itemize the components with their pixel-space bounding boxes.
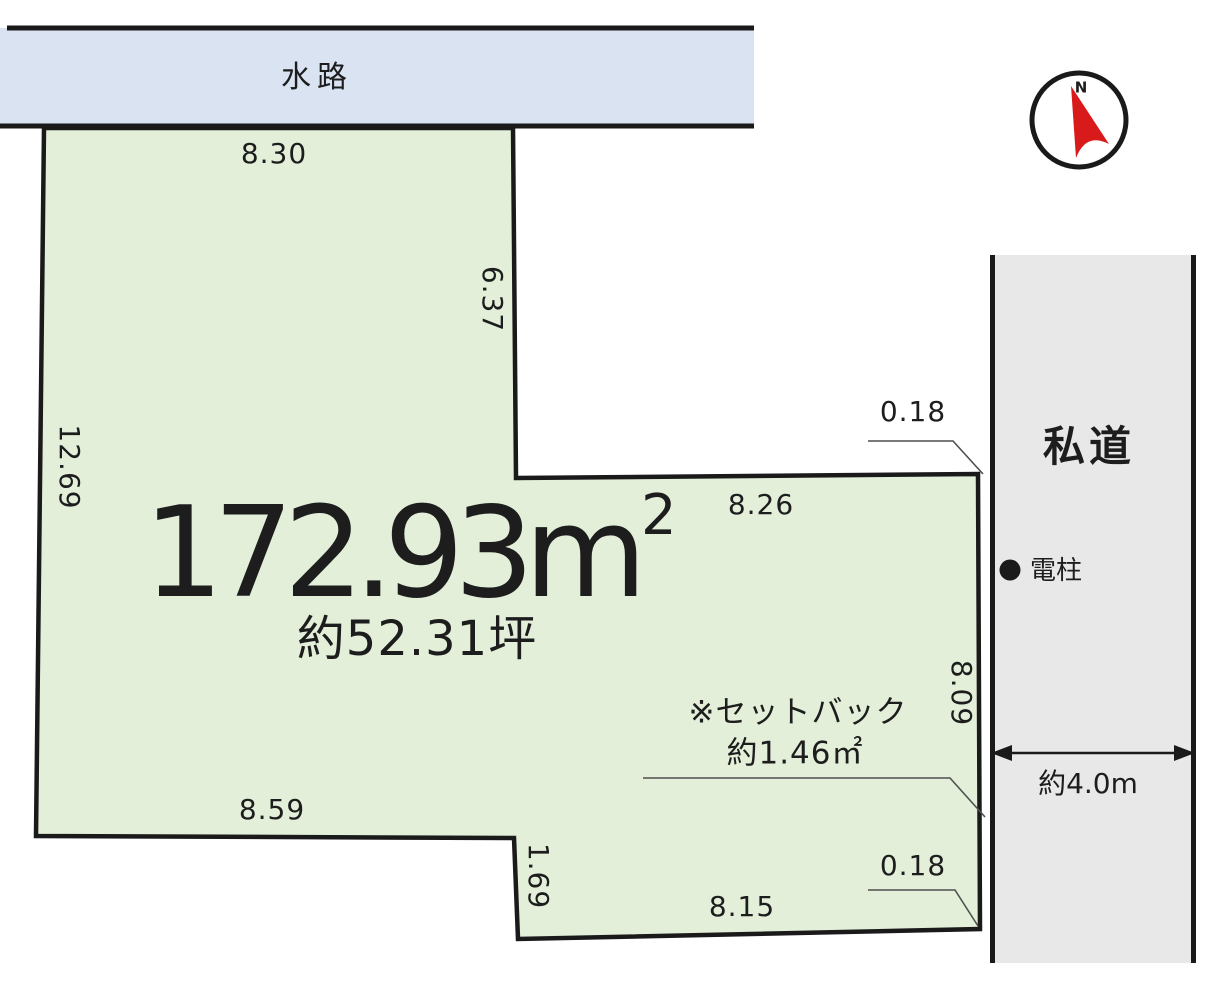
dimension-offset-bottom: 0.18 bbox=[880, 852, 946, 880]
area-superscript: 2 bbox=[641, 483, 677, 548]
dimension-right-edge: 8.09 bbox=[947, 660, 975, 726]
waterway-label: 水路 bbox=[281, 63, 353, 93]
dimension-bottom-left-edge: 8.59 bbox=[239, 796, 305, 824]
area-square-meters: 172.93m2 bbox=[143, 490, 676, 616]
waterway-band bbox=[0, 28, 754, 126]
area-value: 172.93m bbox=[143, 479, 637, 626]
dimension-offset-top: 0.18 bbox=[880, 398, 946, 426]
utility-pole-icon bbox=[1000, 560, 1021, 581]
setback-note-line1: ※セットバック bbox=[689, 698, 908, 729]
dimension-top-edge: 8.30 bbox=[241, 140, 307, 168]
private-road-label: 私道 bbox=[1043, 426, 1135, 468]
dimension-left-edge: 12.69 bbox=[55, 424, 83, 509]
compass-n-label: N bbox=[1075, 81, 1088, 96]
road-width-label: 約4.0m bbox=[1038, 770, 1138, 798]
dimension-step-edge: 1.69 bbox=[524, 843, 552, 909]
setback-note-line2: 約1.46㎡ bbox=[726, 739, 863, 770]
leader-offset-top bbox=[868, 441, 983, 474]
area-tsubo: 約52.31坪 bbox=[297, 615, 537, 663]
private-road-band bbox=[990, 255, 1196, 963]
utility-pole-label: 電柱 bbox=[1030, 558, 1082, 584]
dimension-bottom-edge: 8.15 bbox=[709, 893, 775, 921]
land-plot-diagram: N 水路 私道 電柱 172.93m2 約52.31坪 ※セットバック 約1.4… bbox=[0, 0, 1214, 1000]
dimension-upper-right-edge: 6.37 bbox=[478, 266, 506, 332]
dimension-middle-edge: 8.26 bbox=[728, 491, 794, 519]
